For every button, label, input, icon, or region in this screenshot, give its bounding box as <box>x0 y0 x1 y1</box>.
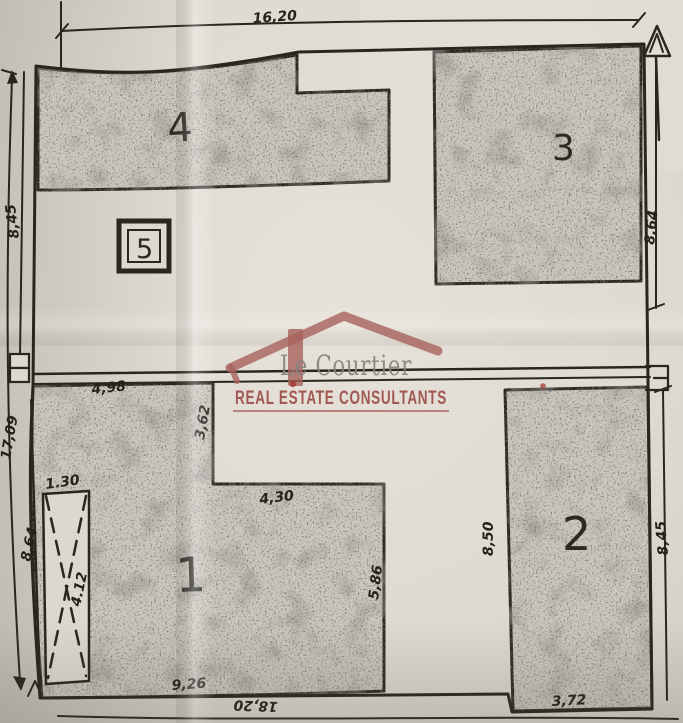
paper-crease-horizontal <box>0 306 683 346</box>
red-mark-right <box>540 383 546 389</box>
red-mark-left <box>290 381 296 387</box>
paper-fold-highlight <box>176 0 216 723</box>
meter-box-icon-bottom <box>10 368 29 382</box>
watermark-tagline: REAL ESTATE CONSULTANTS <box>235 388 447 409</box>
parcel-2-number: 2 <box>562 507 591 561</box>
scanned-site-plan: 16,20 8,45 17,09 8,64 8,64 8,45 4,98 3,6… <box>0 0 683 723</box>
parcel-3-number: 3 <box>552 128 575 169</box>
meter-box-icon-top <box>10 354 29 368</box>
watermark-brand-name: Le Courtier <box>280 349 412 382</box>
site-plan-svg: 16,20 8,45 17,09 8,64 8,64 8,45 4,98 3,6… <box>0 0 683 723</box>
paper-shadow-bottom <box>0 620 683 723</box>
dim-right-lower: 8,45 <box>653 520 672 556</box>
dim-unit2-left: 8,50 <box>481 521 497 556</box>
parcel-5-number: 5 <box>136 234 153 265</box>
dim-top-width: 16,20 <box>252 8 298 27</box>
parcel-3-shape <box>434 46 641 284</box>
